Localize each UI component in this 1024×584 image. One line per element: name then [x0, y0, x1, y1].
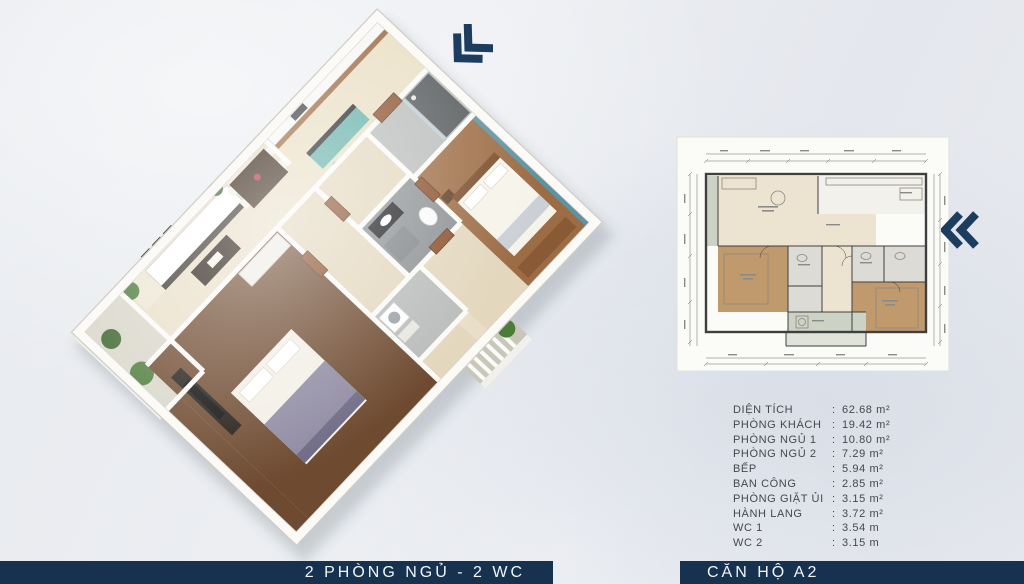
spec-value: 5.94 m²: [842, 462, 953, 477]
spec-separator: :: [832, 521, 842, 536]
unit-type-label: 2 PHÒNG NGỦ - 2 WC: [305, 564, 525, 581]
light-glow: [82, 20, 592, 535]
unit-name-label: CĂN HỘ A2: [707, 564, 819, 581]
spec-label: PHÒNG NGỦ 1: [733, 433, 832, 448]
spec-value: 3.54 m: [842, 521, 953, 536]
spec-value: 3.15 m: [842, 536, 953, 551]
entry-direction-arrow-icon: [441, 24, 493, 74]
spec-row: PHÒNG KHÁCH:19.42 m²: [733, 418, 953, 433]
spec-value: 10.80 m²: [842, 433, 953, 448]
spec-label: WC 1: [733, 521, 832, 536]
spec-value: 7.29 m²: [842, 447, 953, 462]
spec-value: 19.42 m²: [842, 418, 953, 433]
apartment-3d-render: [40, 0, 700, 584]
spec-list: DIỆN TÍCH:62.68 m²PHÒNG KHÁCH:19.42 m²PH…: [733, 403, 953, 551]
spec-separator: :: [832, 403, 842, 418]
spec-value: 3.15 m²: [842, 492, 953, 507]
spec-separator: :: [832, 447, 842, 462]
spec-label: PHÒNG NGỦ 2: [733, 447, 832, 462]
spec-label: PHÒNG KHÁCH: [733, 418, 832, 433]
spec-row: PHÒNG GIẶT ỦI:3.15 m²: [733, 492, 953, 507]
spec-row: PHÒNG NGỦ 2:7.29 m²: [733, 447, 953, 462]
spec-row: HÀNH LANG:3.72 m²: [733, 507, 953, 522]
spec-row: DIỆN TÍCH:62.68 m²: [733, 403, 953, 418]
spec-label: BAN CÔNG: [733, 477, 832, 492]
spec-label: PHÒNG GIẶT ỦI: [733, 492, 832, 507]
spec-separator: :: [832, 477, 842, 492]
bottom-bar-right: CĂN HỘ A2: [680, 561, 1024, 584]
spec-label: DIỆN TÍCH: [733, 403, 832, 418]
spec-label: WC 2: [733, 536, 832, 551]
brochure-page: DIỆN TÍCH:62.68 m²PHÒNG KHÁCH:19.42 m²PH…: [0, 0, 1024, 584]
spec-separator: :: [832, 536, 842, 551]
spec-separator: :: [832, 507, 842, 522]
spec-row: BẾP:5.94 m²: [733, 462, 953, 477]
spec-row: WC 2:3.15 m: [733, 536, 953, 551]
spec-value: 62.68 m²: [842, 403, 953, 418]
spec-row: PHÒNG NGỦ 1:10.80 m²: [733, 433, 953, 448]
spec-separator: :: [832, 433, 842, 448]
spec-label: HÀNH LANG: [733, 507, 832, 522]
bottom-bar-left: 2 PHÒNG NGỦ - 2 WC: [0, 561, 553, 584]
spec-row: BAN CÔNG:2.85 m²: [733, 477, 953, 492]
spec-value: 3.72 m²: [842, 507, 953, 522]
spec-label: BẾP: [733, 462, 832, 477]
spec-separator: :: [832, 418, 842, 433]
floor-plan-2d: [676, 136, 950, 372]
plan-direction-arrow-icon: [941, 209, 981, 251]
spec-separator: :: [832, 462, 842, 477]
spec-row: WC 1:3.54 m: [733, 521, 953, 536]
spec-separator: :: [832, 492, 842, 507]
spec-value: 2.85 m²: [842, 477, 953, 492]
